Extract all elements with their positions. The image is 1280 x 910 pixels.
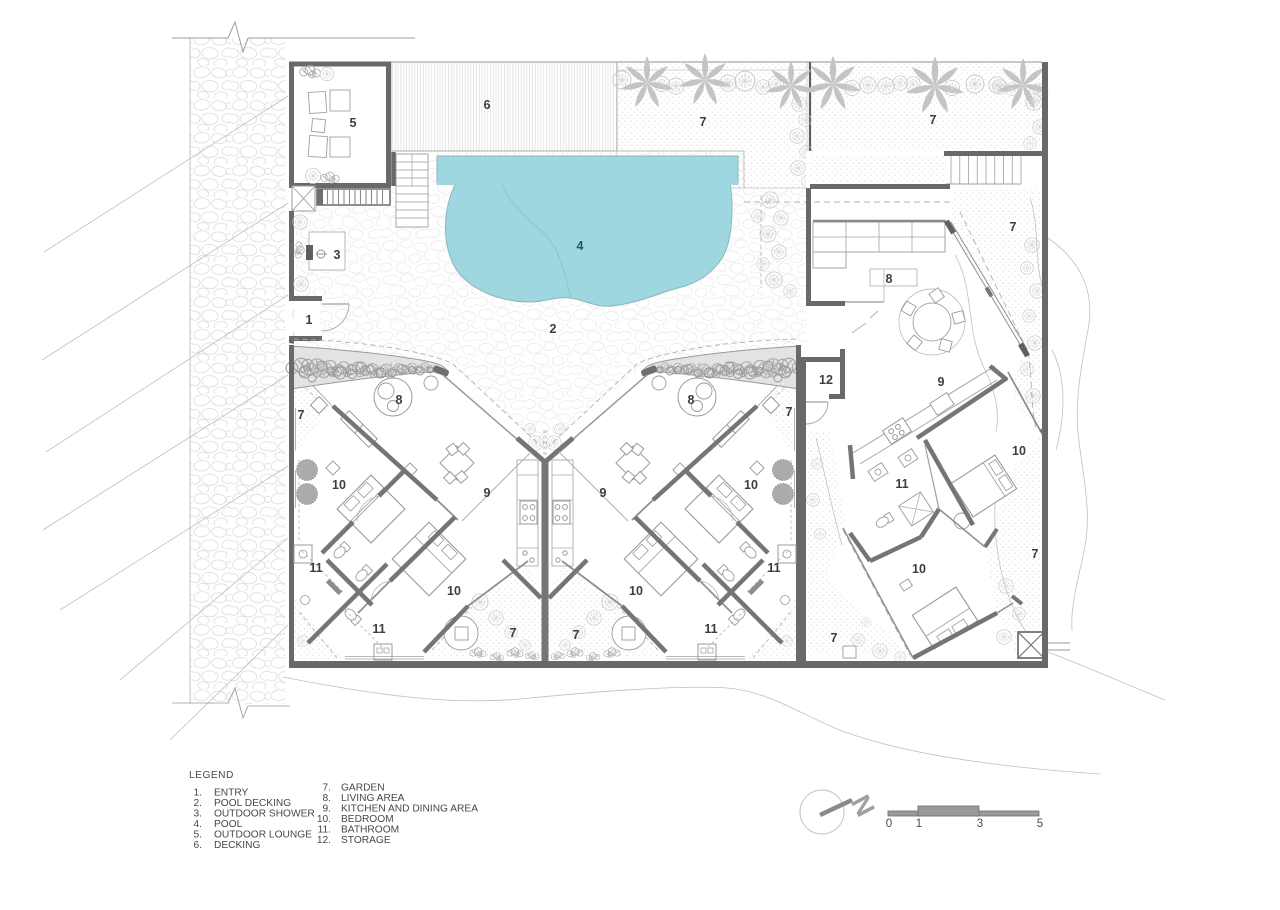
svg-text:4: 4 bbox=[577, 239, 584, 253]
svg-text:LIVING AREA: LIVING AREA bbox=[341, 793, 405, 804]
svg-text:7: 7 bbox=[298, 408, 305, 422]
svg-text:7: 7 bbox=[1010, 220, 1017, 234]
svg-text:2.: 2. bbox=[194, 798, 203, 809]
svg-text:7: 7 bbox=[510, 626, 517, 640]
svg-text:12: 12 bbox=[819, 373, 833, 387]
svg-text:10.: 10. bbox=[317, 814, 331, 825]
svg-text:3.: 3. bbox=[194, 809, 203, 820]
svg-text:8.: 8. bbox=[323, 793, 332, 804]
svg-text:6: 6 bbox=[484, 98, 491, 112]
svg-text:7: 7 bbox=[1032, 547, 1039, 561]
svg-text:KITCHEN AND DINING AREA: KITCHEN AND DINING AREA bbox=[341, 804, 478, 815]
svg-text:5.: 5. bbox=[194, 830, 203, 841]
svg-text:12.: 12. bbox=[317, 835, 331, 846]
svg-text:3: 3 bbox=[334, 248, 341, 262]
svg-text:ENTRY: ENTRY bbox=[214, 788, 249, 799]
svg-text:11: 11 bbox=[767, 561, 780, 575]
svg-text:10: 10 bbox=[629, 584, 643, 598]
svg-text:2: 2 bbox=[550, 322, 557, 336]
svg-text:10: 10 bbox=[912, 562, 926, 576]
svg-text:7: 7 bbox=[786, 405, 793, 419]
svg-text:10: 10 bbox=[744, 478, 758, 492]
svg-text:8: 8 bbox=[886, 272, 893, 286]
svg-text:8: 8 bbox=[688, 393, 695, 407]
svg-text:9: 9 bbox=[938, 375, 945, 389]
svg-text:BEDROOM: BEDROOM bbox=[341, 814, 394, 825]
svg-text:1.: 1. bbox=[194, 788, 203, 799]
svg-text:POOL: POOL bbox=[214, 819, 243, 830]
svg-text:4.: 4. bbox=[194, 819, 203, 830]
svg-text:7.: 7. bbox=[323, 783, 332, 794]
svg-text:10: 10 bbox=[1012, 444, 1026, 458]
svg-text:10: 10 bbox=[332, 478, 346, 492]
svg-text:9.: 9. bbox=[323, 804, 332, 815]
svg-text:DECKING: DECKING bbox=[214, 840, 260, 851]
svg-text:LEGEND: LEGEND bbox=[189, 770, 234, 781]
svg-text:1: 1 bbox=[916, 818, 922, 830]
svg-text:11: 11 bbox=[309, 561, 322, 575]
svg-text:7: 7 bbox=[700, 115, 707, 129]
svg-text:BATHROOM: BATHROOM bbox=[341, 825, 399, 836]
svg-text:STORAGE: STORAGE bbox=[341, 835, 391, 846]
svg-text:10: 10 bbox=[447, 584, 461, 598]
svg-text:5: 5 bbox=[350, 116, 357, 130]
svg-text:11: 11 bbox=[895, 477, 908, 491]
svg-text:11: 11 bbox=[372, 622, 385, 636]
svg-text:7: 7 bbox=[930, 113, 937, 127]
svg-text:5: 5 bbox=[1037, 818, 1043, 830]
svg-text:3: 3 bbox=[977, 818, 983, 830]
svg-text:GARDEN: GARDEN bbox=[341, 783, 385, 794]
svg-text:7: 7 bbox=[573, 628, 580, 642]
svg-text:POOL DECKING: POOL DECKING bbox=[214, 798, 291, 809]
svg-text:0: 0 bbox=[886, 818, 892, 830]
svg-text:OUTDOOR LOUNGE: OUTDOOR LOUNGE bbox=[214, 830, 312, 841]
svg-text:11: 11 bbox=[704, 622, 717, 636]
svg-text:OUTDOOR SHOWER: OUTDOOR SHOWER bbox=[214, 809, 315, 820]
svg-text:8: 8 bbox=[396, 393, 403, 407]
svg-text:1: 1 bbox=[306, 313, 313, 327]
svg-text:9: 9 bbox=[484, 486, 491, 500]
svg-text:9: 9 bbox=[600, 486, 607, 500]
svg-text:11.: 11. bbox=[318, 825, 331, 836]
svg-text:6.: 6. bbox=[194, 840, 203, 851]
svg-text:7: 7 bbox=[831, 631, 838, 645]
